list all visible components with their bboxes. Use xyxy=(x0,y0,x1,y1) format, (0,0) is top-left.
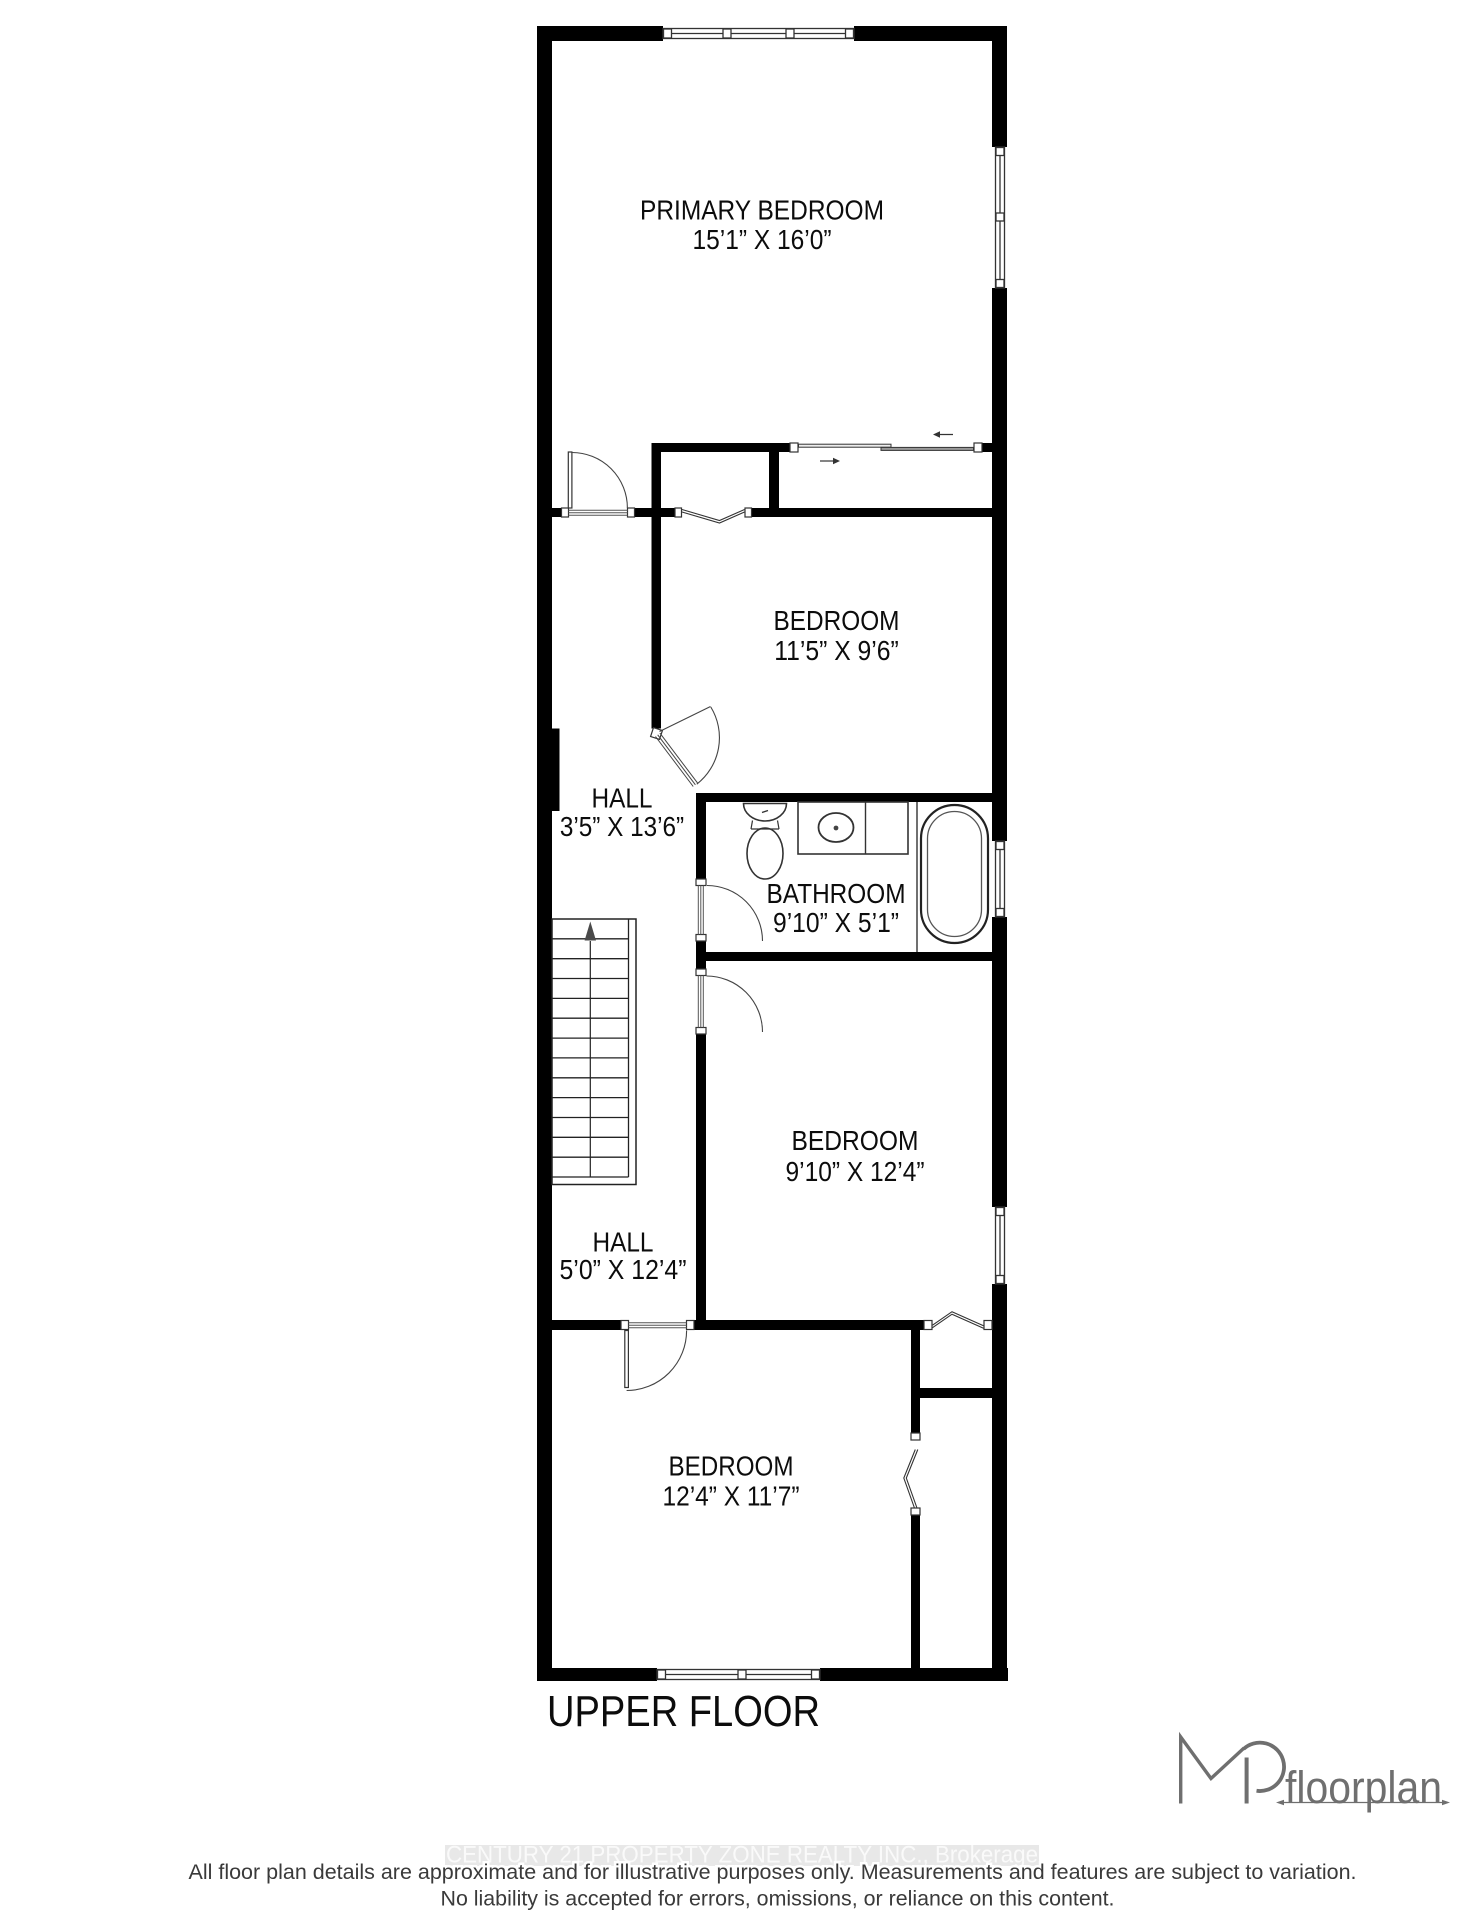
svg-text:PRIMARY BEDROOM: PRIMARY BEDROOM xyxy=(640,195,884,226)
svg-text:11’5” X 9’6”: 11’5” X 9’6” xyxy=(774,635,899,666)
svg-text:9’10” X 5’1”: 9’10” X 5’1” xyxy=(773,907,899,938)
svg-text:BEDROOM: BEDROOM xyxy=(792,1125,919,1156)
svg-text:floorplan: floorplan xyxy=(1285,1762,1442,1813)
svg-text:HALL: HALL xyxy=(592,783,653,814)
svg-text:No liability is accepted for e: No liability is accepted for errors, omi… xyxy=(441,1888,1115,1911)
svg-text:BEDROOM: BEDROOM xyxy=(774,605,900,636)
svg-text:15’1” X 16’0”: 15’1” X 16’0” xyxy=(693,224,832,255)
svg-text:9’10” X 12’4”: 9’10” X 12’4” xyxy=(786,1156,925,1187)
svg-text:BATHROOM: BATHROOM xyxy=(767,878,906,909)
svg-text:5’0” X 12’4”: 5’0” X 12’4” xyxy=(560,1254,687,1285)
svg-text:All floor plan details are app: All floor plan details are approximate a… xyxy=(189,1861,1357,1884)
svg-text:3’5” X 13’6”: 3’5” X 13’6” xyxy=(560,811,684,842)
svg-text:UPPER FLOOR: UPPER FLOOR xyxy=(547,1688,820,1736)
svg-text:BEDROOM: BEDROOM xyxy=(669,1451,794,1482)
svg-text:12’4” X 11’7”: 12’4” X 11’7” xyxy=(663,1481,800,1512)
svg-text:HALL: HALL xyxy=(593,1227,654,1258)
